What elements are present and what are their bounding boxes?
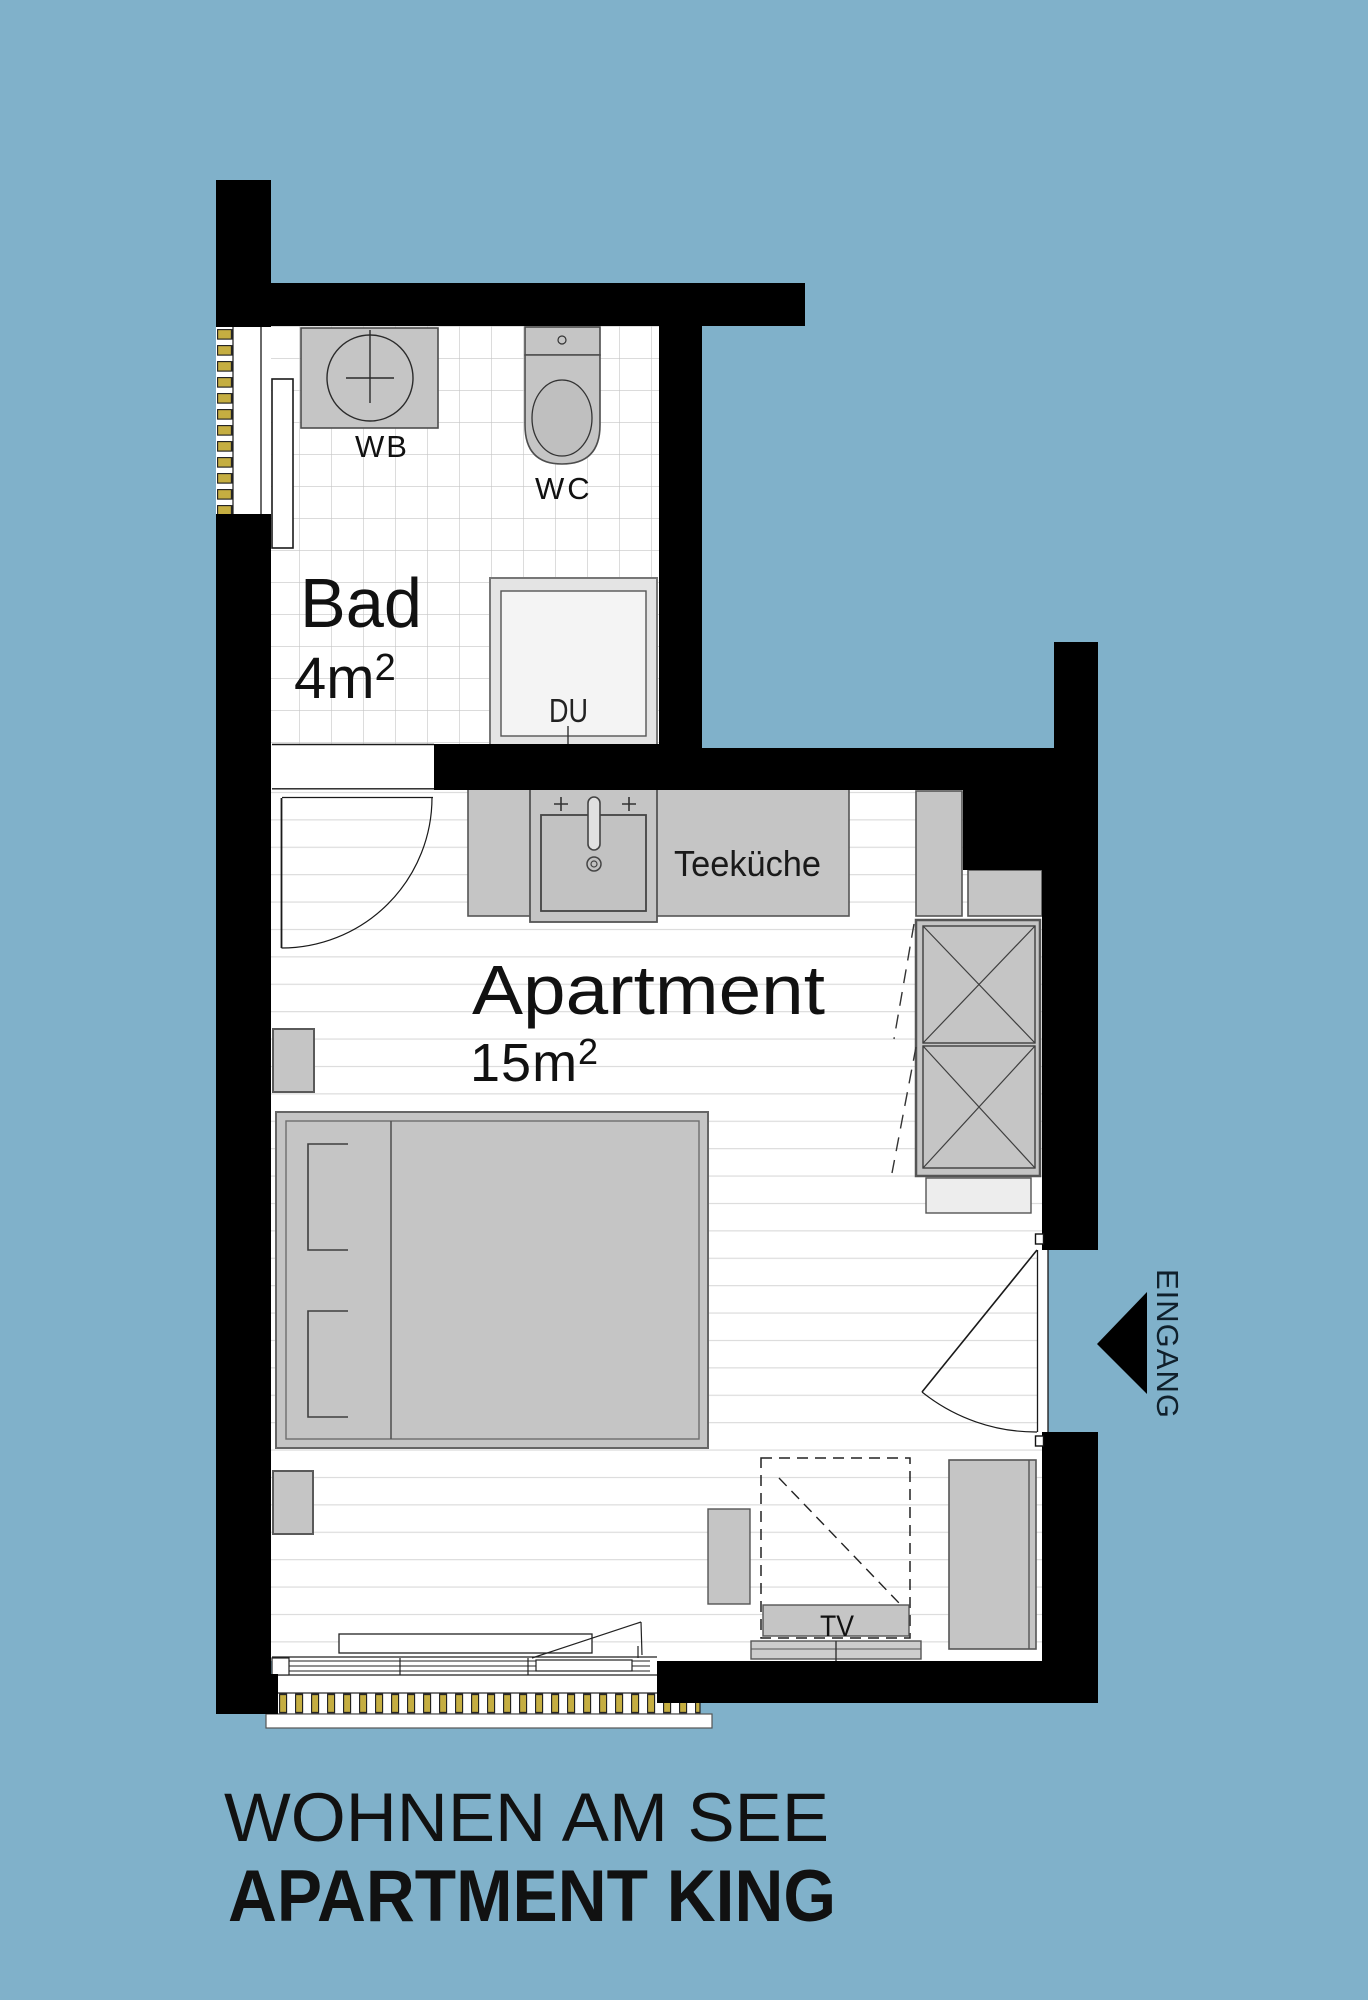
svg-text:EINGANG: EINGANG (1150, 1269, 1185, 1419)
svg-text:Apartment: Apartment (472, 951, 825, 1029)
svg-text:WB: WB (355, 429, 409, 464)
svg-text:Bad: Bad (300, 564, 422, 642)
svg-text:APARTMENT KING: APARTMENT KING (228, 1856, 836, 1937)
svg-text:TV: TV (820, 1610, 854, 1643)
svg-text:Teeküche: Teeküche (674, 843, 821, 884)
svg-text:WC: WC (535, 471, 593, 506)
svg-text:DU: DU (549, 692, 588, 729)
svg-text:WOHNEN AM SEE: WOHNEN AM SEE (224, 1779, 829, 1856)
